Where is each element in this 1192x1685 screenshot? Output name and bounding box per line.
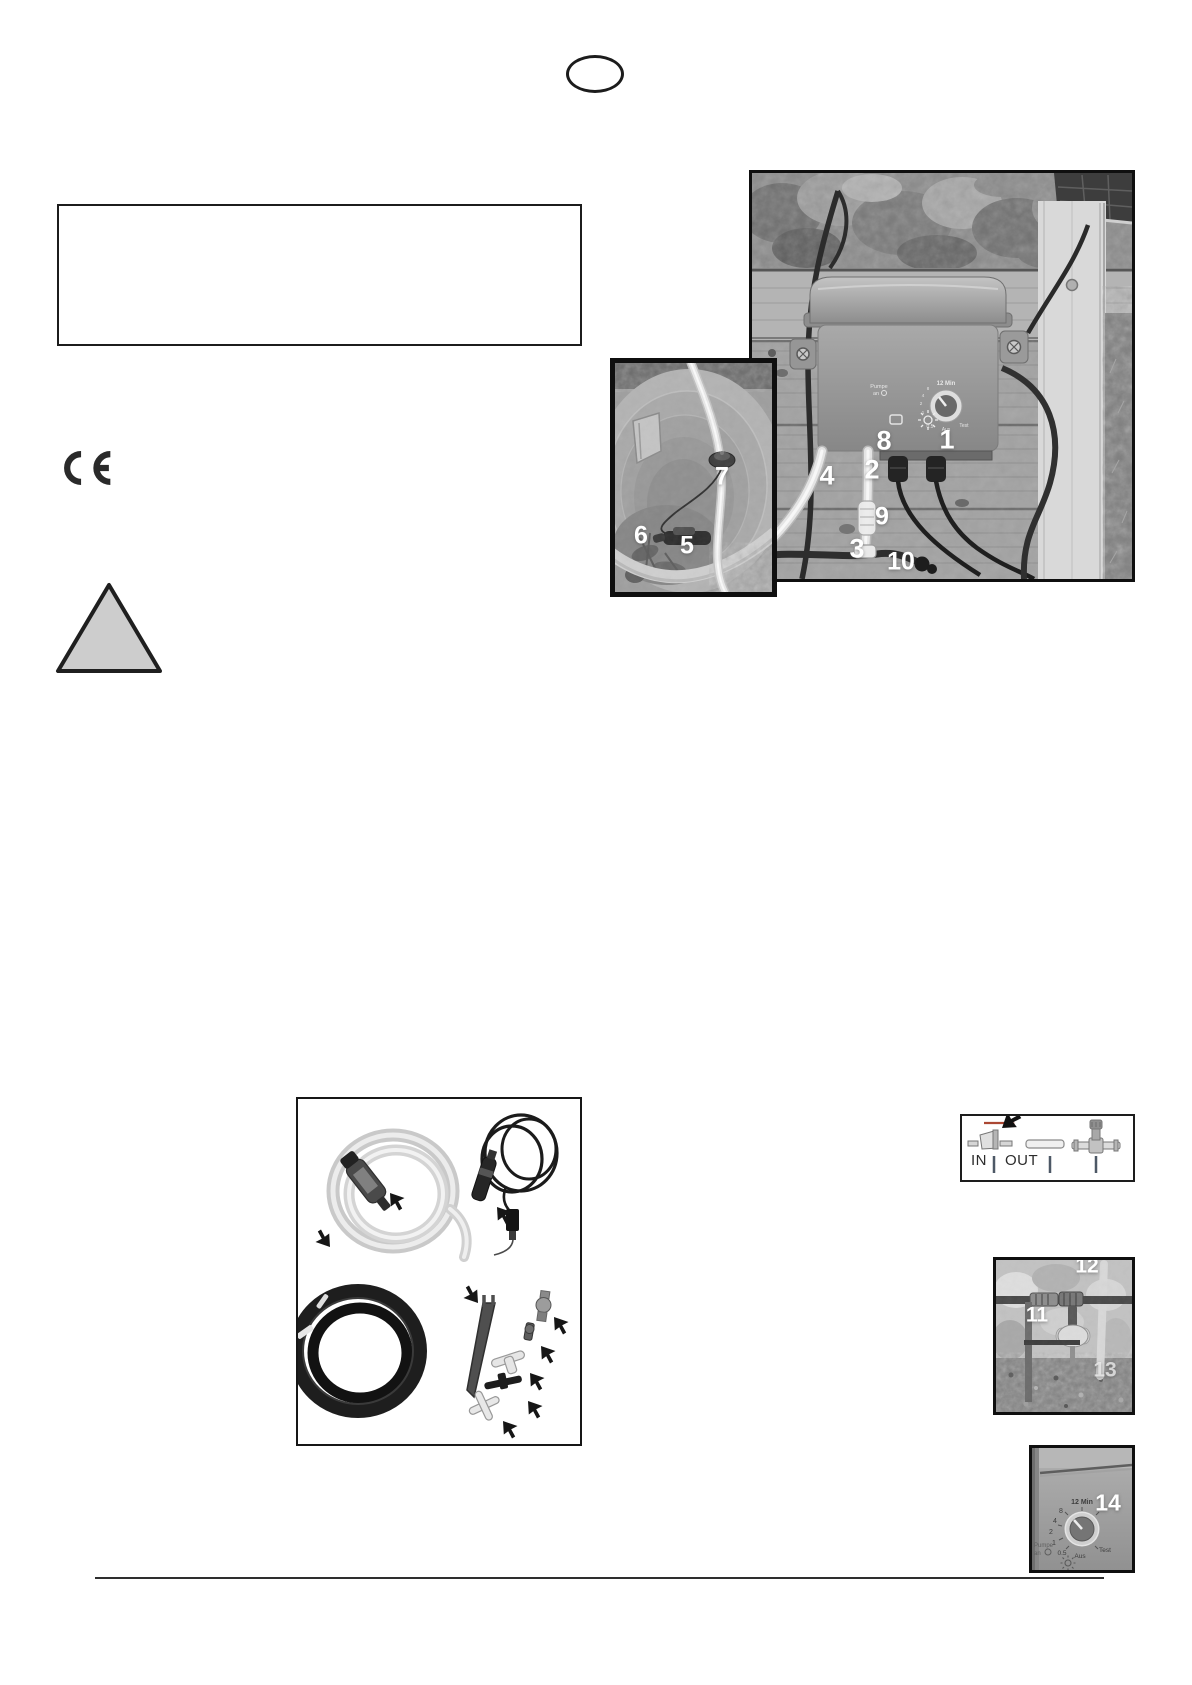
dial-scale-8: 8: [1059, 1508, 1063, 1515]
in-label: IN: [971, 1152, 987, 1169]
callout-1: 1: [939, 427, 954, 454]
water-barrel-photo: 7 6 5: [610, 358, 777, 597]
cursor-arrow-icon: [530, 1373, 545, 1391]
callout-12: 12: [1075, 1257, 1098, 1277]
footer-rule: [95, 1577, 1104, 1579]
device-pump-label-1: Pumpe: [870, 384, 887, 390]
callout-11: 11: [1026, 1305, 1048, 1326]
cursor-arrow-icon: [390, 1193, 405, 1211]
device-pump-label-2: an: [873, 391, 879, 397]
callout-6: 6: [634, 524, 648, 549]
dial-test-label: Test: [1099, 1547, 1111, 1554]
main-installation-photo: 12 Min 8 4 2 1 0.5 Aus Test Pumpe an: [749, 170, 1135, 582]
pump-label-2: an: [1034, 1551, 1041, 1557]
callout-8: 8: [876, 428, 891, 455]
warning-triangle-icon: [53, 580, 165, 676]
callout-9: 9: [875, 505, 889, 530]
cursor-arrow-icon: [1002, 1116, 1021, 1128]
cursor-arrow-icon: [316, 1230, 331, 1248]
device-dial-test-label: Test: [959, 423, 969, 429]
valve-direction-diagram: IN OUT: [960, 1114, 1135, 1182]
check-valve: [534, 1290, 553, 1322]
valve-diagram-graphics: [962, 1116, 1133, 1180]
cursor-arrow-icon: [541, 1346, 556, 1364]
cursor-arrow-icon: [528, 1401, 543, 1419]
device-dial-top-label: 12 Min: [937, 381, 956, 387]
garden-scene: 12 Min 8 4 2 1 0.5 Aus Test Pumpe an: [752, 173, 1132, 579]
callout-3: 3: [849, 536, 864, 563]
parts-kit-photo: [296, 1097, 582, 1446]
callout-5: 5: [680, 534, 694, 559]
small-connector: [523, 1322, 535, 1340]
ce-mark-icon: [54, 444, 114, 492]
drip-emitter-photo: 11 12 13: [993, 1257, 1135, 1415]
callout-7: 7: [715, 465, 729, 490]
pump-label-1: Pumpe: [1034, 1543, 1054, 1549]
parts-scene: [298, 1099, 580, 1444]
language-oval: [566, 55, 624, 93]
dial-scale-4: 4: [1053, 1518, 1057, 1525]
dial-off-label: Aus: [1074, 1553, 1086, 1560]
drip-scene: [996, 1260, 1132, 1412]
dial-top-label: 12 Min: [1071, 1499, 1093, 1506]
dial-scale-2: 2: [1049, 1529, 1053, 1536]
cursor-arrow-icon: [554, 1317, 569, 1335]
timer-dial-photo: 12 Min 8 4 2 1 0.5 Aus Test Pumpe an 14: [1029, 1445, 1135, 1573]
cursor-arrow-icon: [464, 1286, 479, 1304]
tee-valve-icon: [1072, 1120, 1120, 1153]
check-valve-icon: [968, 1130, 1012, 1149]
manual-page: 12 Min 8 4 2 1 0.5 Aus Test Pumpe an: [0, 0, 1192, 1685]
tee-connector-white: [491, 1350, 529, 1379]
tube-piece: [1026, 1140, 1064, 1148]
empty-note-box: [57, 204, 582, 346]
callout-10: 10: [887, 550, 915, 575]
tee-connector-black: [483, 1369, 523, 1393]
callout-2: 2: [864, 457, 879, 484]
callout-4: 4: [819, 463, 834, 490]
callout-13: 13: [1093, 1360, 1116, 1381]
dial-scale-05: 0.5: [1057, 1550, 1066, 1557]
out-label: OUT: [1005, 1152, 1038, 1169]
cursor-arrow-icon: [503, 1421, 518, 1439]
callout-14: 14: [1095, 1492, 1121, 1515]
